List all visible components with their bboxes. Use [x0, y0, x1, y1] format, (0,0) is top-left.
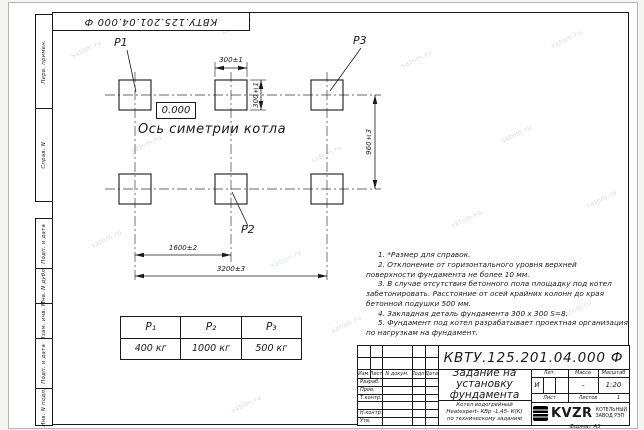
rev-col-list: Лист: [370, 369, 382, 378]
load-table-value: 400 кг: [121, 339, 180, 360]
company-logo: KVZR КОТЕЛЬНЫЙ ЗАВОД РЭП: [533, 406, 627, 421]
note-3: 3. В случае отсутствия бетонного пола пл…: [366, 279, 628, 308]
sign-row-utv: Утв.: [358, 417, 384, 425]
sheets-label: Листов: [568, 393, 608, 402]
rev-col-izm: Изм.: [358, 369, 370, 378]
scale-value: 1:20: [598, 377, 629, 393]
load-table-value: 500 кг: [241, 339, 301, 360]
sign-row-prov: Пров.: [358, 386, 384, 394]
title-block-designation: КВТУ.125.201.04.000 Ф: [438, 346, 629, 369]
pad-label-p1: P1: [114, 36, 128, 49]
format-note: Формат А3: [545, 423, 625, 430]
company-name-line: ЗАВОД РЭП: [596, 414, 627, 420]
product-name: Котел водогрейный Heatexpert- КВр -1,45-…: [438, 400, 531, 425]
scale-label: Масштаб: [598, 369, 629, 377]
dimension-row-spacing: 960±3: [363, 118, 375, 166]
note-4: 4. Закладная деталь фундамента 300 х 300…: [366, 309, 628, 319]
grid-line: [555, 377, 556, 393]
product-name-line: по техническому заданию: [447, 416, 522, 423]
document-title: Задание на установку фундамента: [438, 369, 531, 400]
kvzr-logo-icon: [533, 406, 548, 421]
kvzr-logo-text: KVZR: [551, 406, 593, 421]
sheets-value: 1: [608, 393, 629, 402]
mass-value: –: [568, 377, 598, 393]
sign-row-blank: [358, 401, 384, 409]
load-table-header-row: P₁ P₂ P₃: [121, 317, 301, 338]
pad-label-p3: P3: [353, 34, 367, 47]
load-table: P₁ P₂ P₃ 400 кг 1000 кг 500 кг: [120, 316, 302, 360]
sign-row-tkontr: Т.контр.: [358, 394, 384, 401]
title-block: КВТУ.125.201.04.000 Ф Изм. Лист N докум.…: [357, 345, 630, 426]
rev-col-ndokum: N докум.: [382, 369, 412, 378]
load-table-header: P₁: [121, 317, 180, 338]
sign-row-razrab: Разраб.: [358, 378, 384, 386]
rev-col-data: Дата: [425, 369, 438, 378]
pad-label-p2: P2: [241, 223, 255, 236]
drawing-sheet-page: satom.ru satom.ru satom.ru satom.ru sato…: [0, 0, 644, 430]
sign-row-nkontr: Н.контр.: [358, 409, 384, 417]
centerlines: [105, 72, 381, 282]
company-cell: KVZR КОТЕЛЬНЫЙ ЗАВОД РЭП: [531, 402, 629, 425]
product-name-line: Heatexpert- КВр -1,45- К(К): [446, 409, 522, 416]
product-name-line: Котел водогрейный: [456, 402, 513, 409]
dimension-col-spacing: 1600±2: [159, 244, 207, 252]
grid-line: [543, 377, 544, 393]
dimension-total-width: 3200±3: [207, 265, 255, 273]
document-title-line: фундамента: [450, 390, 520, 400]
sheet-label: Лист: [531, 393, 568, 402]
load-table-header: P₂: [180, 317, 240, 338]
dimension-text: 300±1: [252, 82, 260, 108]
technical-notes: 1. *Размер для справок. 2. Отклонение от…: [366, 250, 628, 338]
load-table-value: 1000 кг: [180, 339, 240, 360]
dimension-pad-height: 300±1: [250, 80, 262, 110]
note-1: 1. *Размер для справок.: [366, 250, 628, 260]
rev-col-podp: Подп.: [412, 369, 425, 378]
note-2: 2. Отклонение от горизонтального уровня …: [366, 260, 628, 280]
company-name-line: КОТЕЛЬНЫЙ: [596, 408, 627, 414]
lit-value: И: [531, 377, 543, 393]
level-mark-box: 0.000: [156, 102, 196, 119]
load-table-header: P₃: [241, 317, 301, 338]
axis-of-symmetry-label: Ось симетрии котла: [138, 122, 286, 137]
leader-lines: [127, 48, 361, 226]
note-5: 5. Фундамент под котел разрабатывает про…: [366, 318, 628, 338]
dimension-pad-width: 300±1: [209, 56, 253, 64]
lit-label: Лит.: [531, 369, 568, 377]
grid-line: [358, 357, 438, 358]
dimension-text: 960±3: [365, 129, 373, 155]
company-name: КОТЕЛЬНЫЙ ЗАВОД РЭП: [596, 408, 627, 420]
mass-label: Масса: [568, 369, 598, 377]
load-table-value-row: 400 кг 1000 кг 500 кг: [121, 338, 301, 360]
